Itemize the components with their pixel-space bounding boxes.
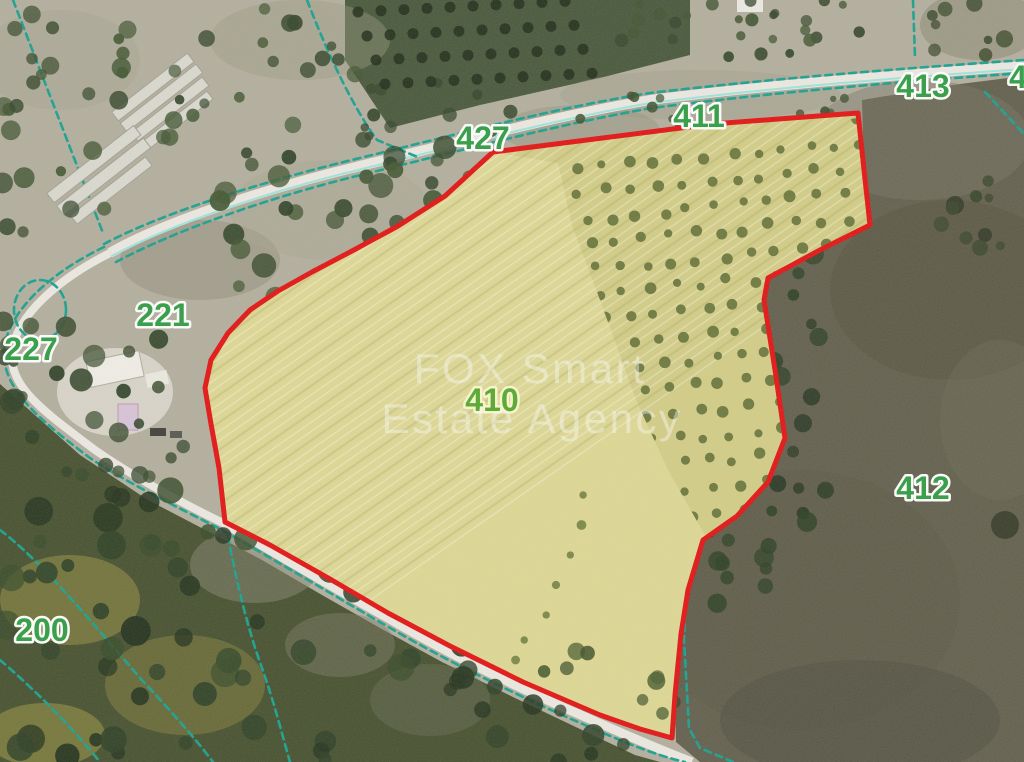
photo-grain-overlay (0, 0, 1024, 762)
aerial-map-image: 427 411 413 4 221 227 200 412 410 FOX Sm… (0, 0, 1024, 762)
map-canvas: 427 411 413 4 221 227 200 412 410 FOX Sm… (0, 0, 1024, 762)
